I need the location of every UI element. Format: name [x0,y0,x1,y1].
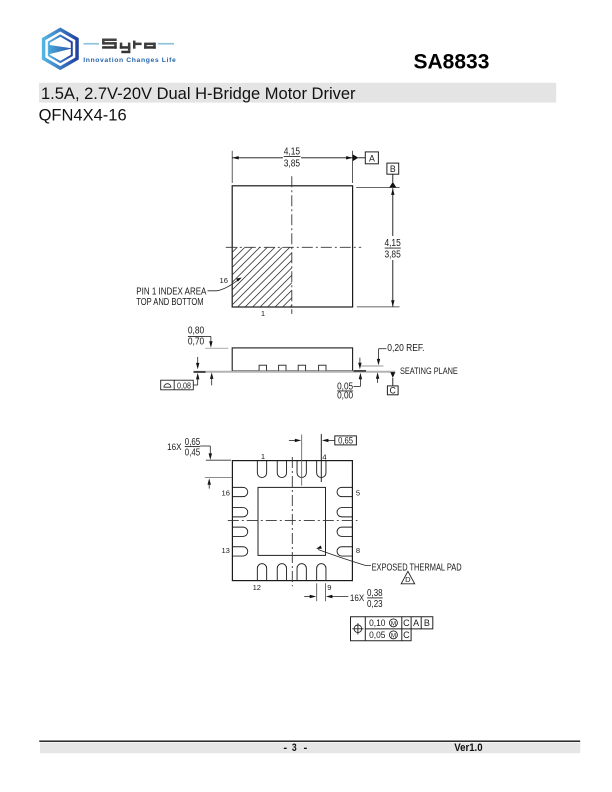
svg-text:TOP AND BOTTOM: TOP AND BOTTOM [136,297,203,308]
svg-text:C: C [390,385,397,395]
svg-text:C: C [403,630,410,640]
svg-text:4,15: 4,15 [284,147,300,158]
svg-text:8: 8 [356,546,360,555]
svg-text:SEATING PLANE: SEATING PLANE [400,365,458,376]
svg-text:A: A [413,618,419,628]
svg-text:PIN 1 INDEX AREA: PIN 1 INDEX AREA [136,287,207,298]
svg-text:B: B [390,164,396,174]
svg-text:-: - [304,742,308,754]
svg-text:0,65: 0,65 [338,436,353,446]
svg-text:D: D [405,575,411,584]
svg-text:3,85: 3,85 [284,158,300,169]
svg-text:9: 9 [327,583,331,592]
svg-text:1.5A, 2.7V-20V Dual H-Bridge M: 1.5A, 2.7V-20V Dual H-Bridge Motor Drive… [41,85,356,103]
svg-text:-: - [283,742,287,754]
svg-text:0,00: 0,00 [337,391,354,402]
svg-text:0,08: 0,08 [177,380,191,390]
svg-text:Ver1.0: Ver1.0 [454,742,482,754]
svg-text:3: 3 [292,742,297,754]
svg-text:16X: 16X [350,592,365,603]
svg-text:12: 12 [253,583,261,592]
svg-text:EXPOSED THERMAL PAD: EXPOSED THERMAL PAD [372,562,462,573]
svg-text:A: A [369,154,375,164]
svg-text:QFN4X4-16: QFN4X4-16 [39,107,127,125]
svg-text:5: 5 [356,488,360,497]
svg-text:0,20 REF.: 0,20 REF. [387,343,424,354]
svg-text:3,85: 3,85 [384,250,400,261]
svg-text:13: 13 [221,546,229,555]
svg-text:16: 16 [220,276,228,285]
svg-text:M: M [391,633,396,640]
svg-text:16X: 16X [167,441,182,452]
svg-text:16: 16 [222,488,230,497]
svg-text:0,10: 0,10 [369,617,385,628]
svg-text:1: 1 [261,452,265,461]
svg-text:4,15: 4,15 [384,238,400,249]
svg-text:M: M [391,621,396,628]
svg-text:0,70: 0,70 [188,337,205,348]
svg-text:C: C [403,618,410,628]
svg-text:1: 1 [261,309,265,318]
svg-text:0,45: 0,45 [185,448,200,459]
svg-text:4: 4 [322,452,326,461]
svg-text:B: B [424,618,430,628]
svg-text:0,80: 0,80 [188,326,205,337]
svg-text:0,05: 0,05 [369,629,385,640]
svg-text:SA8833: SA8833 [414,50,490,73]
svg-text:Innovation Changes Life: Innovation Changes Life [83,57,176,64]
svg-text:0,23: 0,23 [367,599,383,610]
